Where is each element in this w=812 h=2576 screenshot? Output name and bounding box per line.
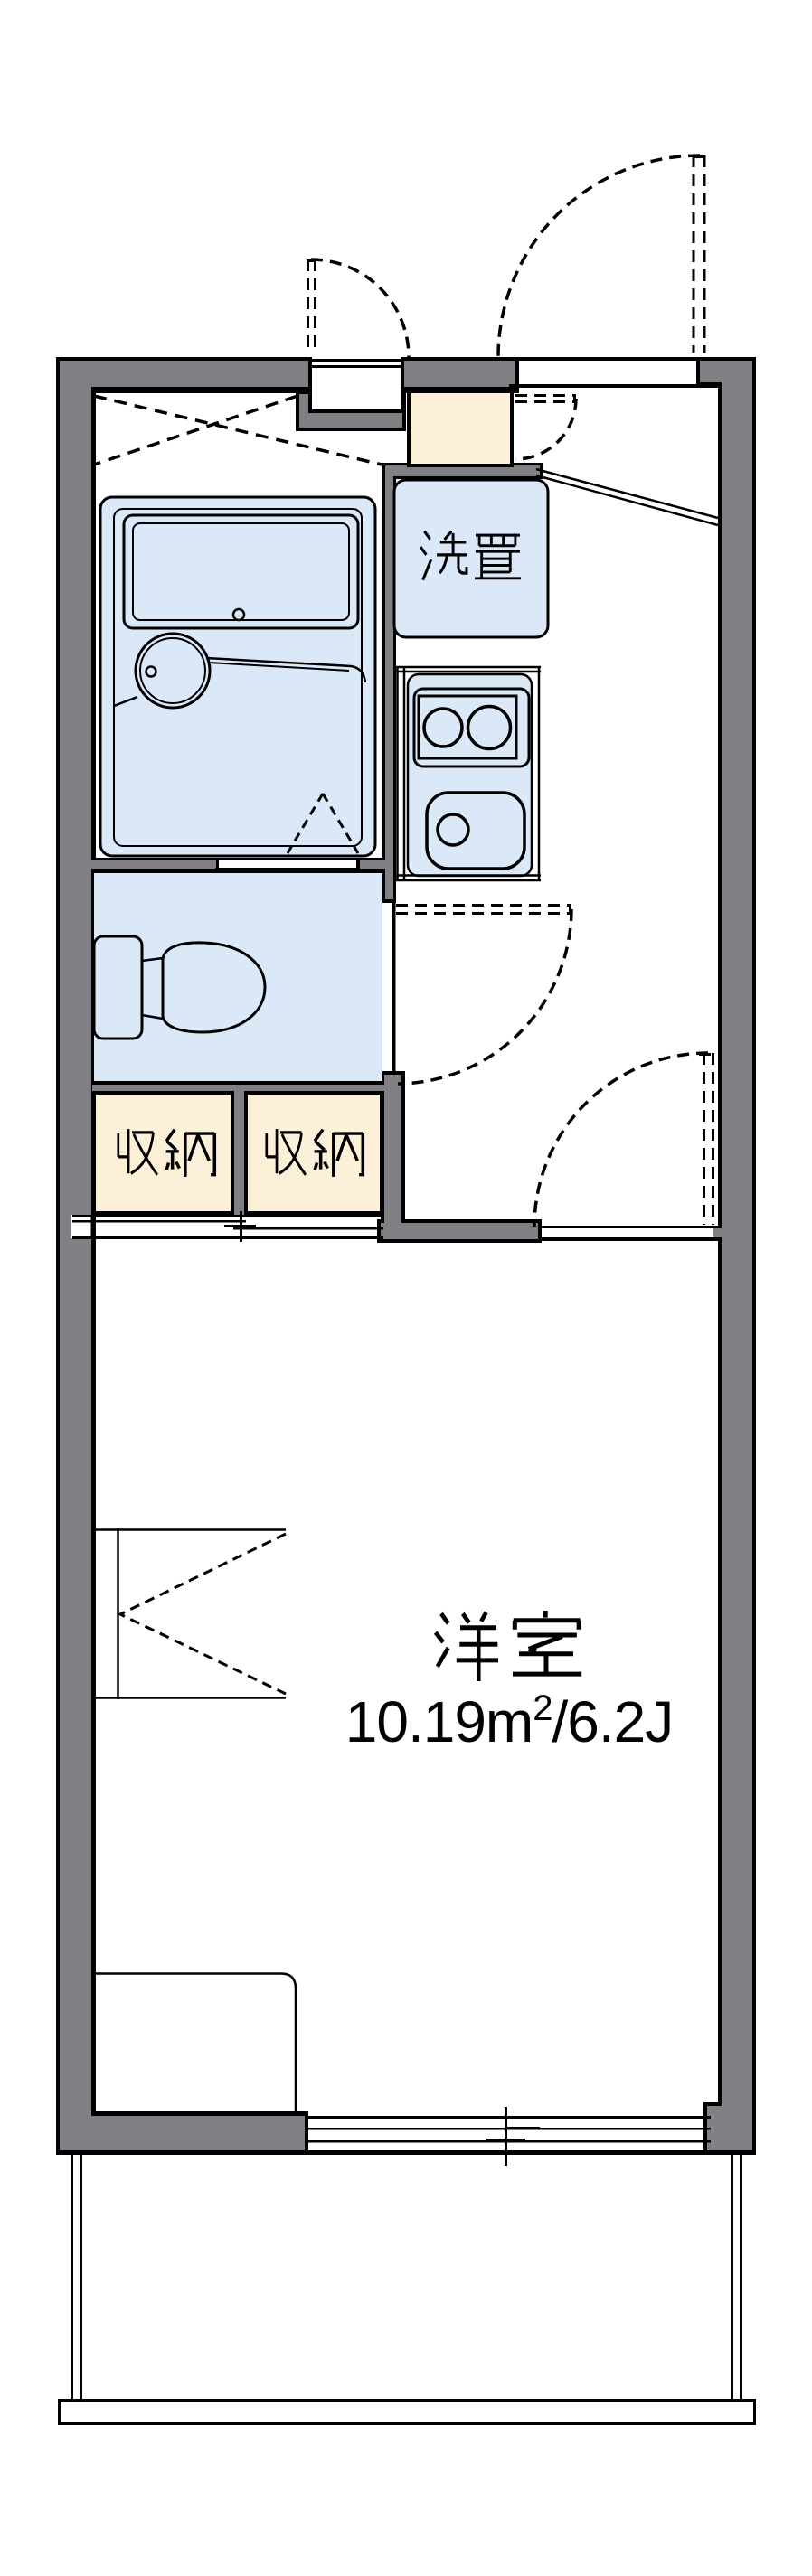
svg-text:10.19m2/6.2J: 10.19m2/6.2J [345, 1688, 673, 1754]
